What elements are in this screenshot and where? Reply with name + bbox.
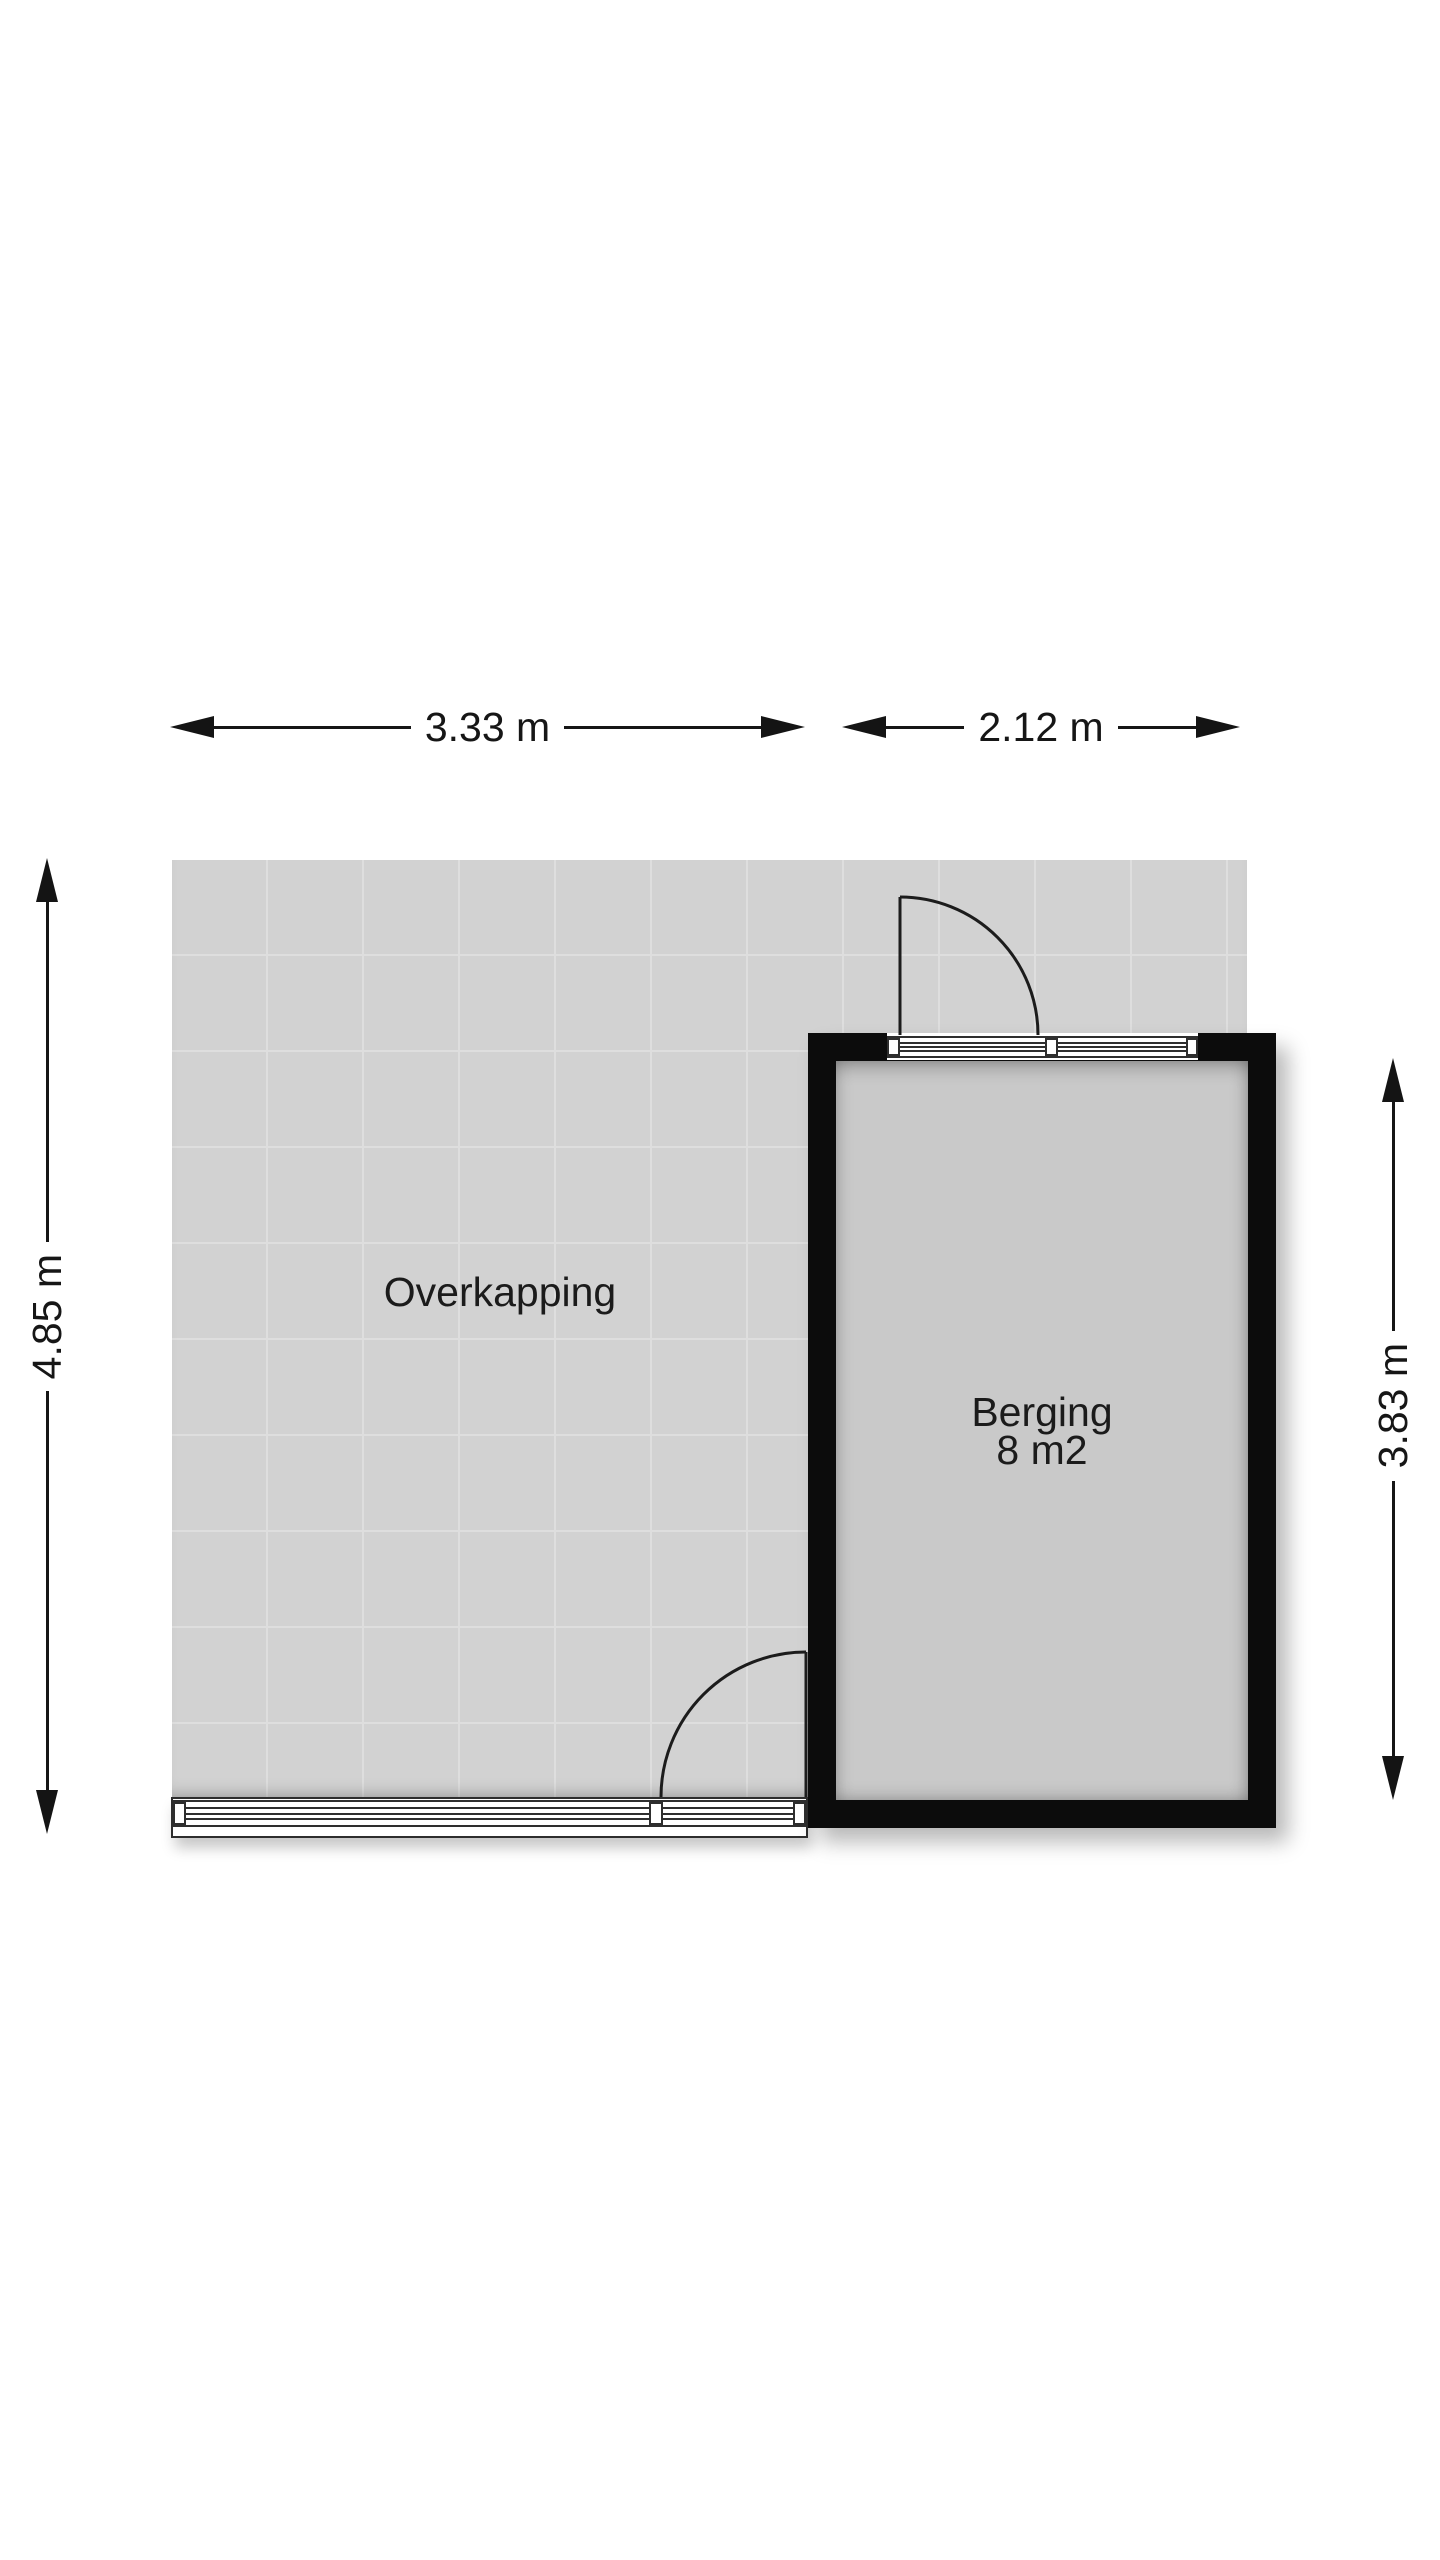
arrowhead-left-icon (842, 716, 886, 738)
dimension-line (1392, 1481, 1395, 1756)
arrowhead-down-icon (36, 1790, 58, 1834)
dimension-label: 2.12 m (964, 705, 1117, 749)
overkapping-room-label: Overkapping (310, 1268, 690, 1316)
berging-name: Berging (971, 1393, 1112, 1431)
window-mullion (649, 1802, 663, 1825)
dimension-berging-width: 2.12 m (842, 705, 1240, 749)
dimension-label: 3.83 m (1373, 1331, 1414, 1480)
door-frame-cap (887, 1038, 900, 1056)
bottom-window-strip (173, 1800, 806, 1827)
berging-area: 8 m2 (971, 1431, 1112, 1469)
bottom-window-wall (171, 1797, 808, 1838)
dimension-label: 3.33 m (411, 705, 564, 749)
window-glazing (186, 1802, 649, 1825)
dimension-overkapping-width: 3.33 m (170, 705, 805, 749)
dimension-line (564, 726, 761, 729)
arrowhead-right-icon (1196, 716, 1240, 738)
arrowhead-down-icon (1382, 1756, 1404, 1800)
window-mullion (1045, 1038, 1058, 1056)
dimension-berging-height: 3.83 m (1371, 1058, 1415, 1800)
door-threshold (663, 1802, 793, 1825)
window-glazing (1058, 1038, 1186, 1056)
dimension-line (46, 1391, 49, 1790)
dimension-line (214, 726, 411, 729)
window-end-cap (1186, 1038, 1198, 1056)
arrowhead-right-icon (761, 716, 805, 738)
floorplan-canvas: Overkapping Berging 8 m2 (0, 0, 1440, 2560)
berging-room-label: Berging 8 m2 (971, 1393, 1112, 1469)
dimension-line (46, 902, 49, 1242)
window-end-cap (173, 1802, 186, 1825)
door-threshold (900, 1038, 1045, 1056)
dimension-label: 4.85 m (27, 1242, 68, 1391)
arrowhead-left-icon (170, 716, 214, 738)
dimension-line (1392, 1102, 1395, 1331)
floorplan-page: { "floorplan": { "rooms": { "overkapping… (0, 0, 1440, 2560)
room-berging: Berging 8 m2 (808, 1033, 1276, 1828)
dimension-overkapping-height: 4.85 m (25, 858, 69, 1834)
dimension-line (1118, 726, 1196, 729)
window-end-cap (793, 1802, 806, 1825)
top-window-strip (887, 1036, 1198, 1058)
arrowhead-up-icon (36, 858, 58, 902)
berging-floor: Berging 8 m2 (836, 1061, 1248, 1800)
dimension-line (886, 726, 964, 729)
berging-top-wall-opening (887, 1033, 1198, 1060)
arrowhead-up-icon (1382, 1058, 1404, 1102)
